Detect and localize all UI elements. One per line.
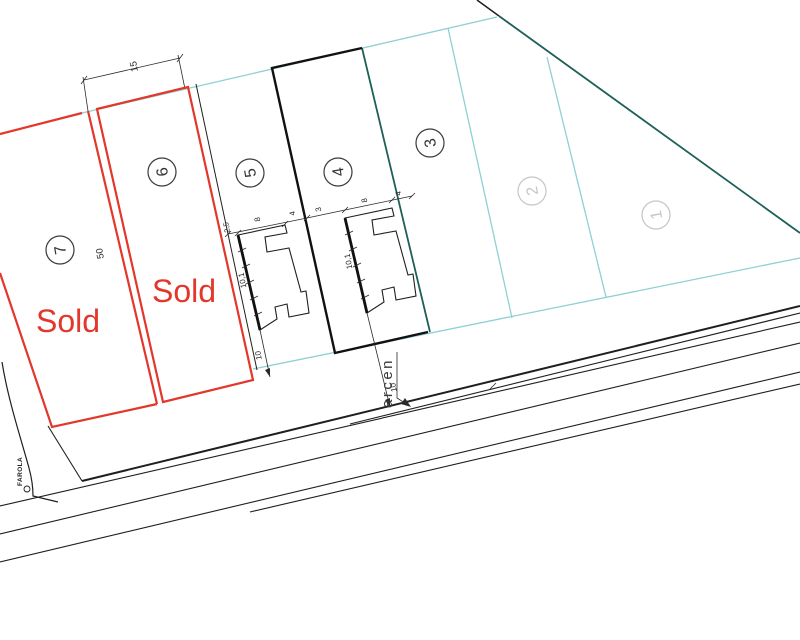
upper-right-boundary [499, 16, 800, 233]
lot4-outline [272, 48, 428, 353]
top-corner-segment [477, 0, 499, 16]
gap-label: 3 [314, 206, 324, 212]
lot1-number: 1 [648, 209, 666, 221]
arcen-callout: arcen [379, 352, 411, 408]
lot7-left-bottom-edge [0, 273, 157, 427]
b5-offset-label: 2,5 [221, 222, 232, 234]
lot3-number: 3 [422, 137, 440, 149]
sold-parcels [0, 87, 253, 427]
lot2-lot3-boundary [448, 28, 512, 318]
parcel-map: arcen FAROLA 1 2 3 4 5 6 7 Sold Sold 15 … [0, 0, 800, 640]
lot4-number: 4 [330, 166, 348, 178]
road-line-5 [0, 372, 800, 562]
lot6-width-label: 15 [128, 60, 141, 72]
party-wall-hatching [238, 231, 369, 316]
road-line-3 [0, 322, 800, 506]
lot6-depth-label: 50 [94, 247, 107, 259]
b4-width-label: 8 [360, 197, 370, 203]
road-shoulder-line [82, 306, 800, 481]
road-line-4 [0, 343, 800, 534]
sidewalk-curve [2, 362, 58, 502]
dim-ext-1 [83, 77, 88, 111]
lot5-number: 5 [242, 167, 260, 179]
cyan-boundaries [82, 17, 800, 369]
building-top-dim-chain [228, 196, 412, 234]
lot6-sold-label: Sold [152, 273, 216, 309]
lot6-number: 6 [154, 166, 172, 178]
lot-number-bubbles: 1 2 3 4 5 6 7 [46, 129, 670, 264]
lot3-lot4-boundary [362, 48, 430, 332]
lot7-sold-label: Sold [36, 303, 100, 339]
driveway-line [48, 426, 82, 481]
b5-front-label: 10 [253, 350, 264, 361]
road [0, 306, 800, 562]
teal-boundaries [362, 0, 800, 332]
lot2-number: 2 [524, 185, 542, 197]
lot7-number: 7 [52, 244, 70, 256]
b5-ext-label: 4 [288, 210, 298, 216]
arcen-arrowhead [401, 398, 411, 407]
lot7-top-edge [0, 113, 82, 134]
b4-ext-label: 4 [394, 190, 404, 196]
lot1-lot2-boundary [547, 57, 606, 297]
farola-label: FAROLA [17, 457, 24, 486]
dimension-labels: 15 50 2,5 8 4 3 10,1 10 8 4 10,1 10 [94, 60, 403, 392]
arcen-leader-line [397, 352, 408, 405]
b5-width-label: 8 [253, 216, 263, 222]
lot5-front-arrow [265, 368, 270, 377]
site-plan-canvas: arcen FAROLA 1 2 3 4 5 6 7 Sold Sold 15 … [0, 0, 800, 640]
dim-ext-2 [178, 55, 185, 89]
road-line-2 [350, 313, 800, 424]
street-lamp-symbol [24, 486, 30, 492]
inner-lot-boundaries [196, 48, 428, 370]
road-line-6 [250, 384, 800, 512]
